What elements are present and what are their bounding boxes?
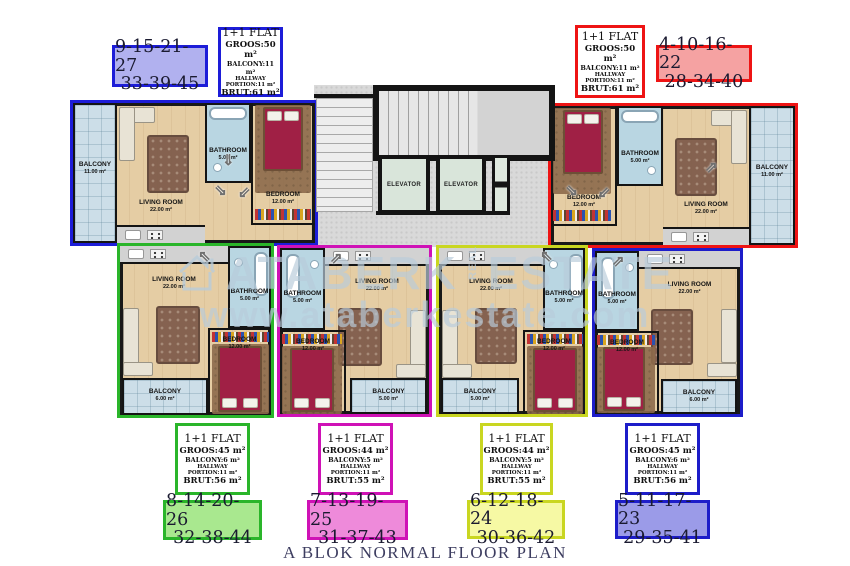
sink-icon (125, 230, 141, 240)
bed (263, 107, 303, 171)
room-name: BEDROOM (266, 191, 300, 198)
watermark-estate: ESTATE (488, 246, 675, 300)
flat-hallway: HALLWAY PORTION:11 m² (321, 464, 390, 476)
room-area: 12.00 m² (208, 344, 271, 351)
flat-balcony: BALCONY:5 m² (489, 456, 544, 464)
flat-type: 1+1 FLAT (222, 26, 278, 39)
sink-icon (671, 232, 687, 242)
room-area: 12.00 m² (523, 346, 585, 353)
unit-numbers-line1: 8-14-20-26 (166, 492, 259, 529)
room-area: 5.00 m² (350, 396, 427, 403)
unit-numbers-bottom-1: 8-14-20-26 32-38-44 (163, 500, 262, 540)
door-swing-arrow: ⇗ (539, 250, 554, 263)
unit-numbers-bottom-3: 6-12-18-24 30-36-42 (467, 500, 565, 539)
door-swing-arrow: ⇗ (598, 185, 611, 200)
flat-groos: GROOS:50 m² (221, 40, 280, 60)
balcony-label: BALCONY 6.00 m² (661, 389, 737, 405)
flat-brut: BRUT:61 m² (221, 88, 279, 98)
unit-numbers-bottom-4: 5-11-17-23 29-35-41 (615, 500, 710, 539)
flat-hallway: HALLWAY PORTION:11 m² (221, 76, 280, 88)
washbasin (647, 166, 656, 175)
unit-numbers-line1: 5-11-17-23 (618, 492, 707, 529)
unit-numbers-top-left: 9-15-21-27 33-39-45 (112, 45, 208, 87)
staircase-block (373, 85, 555, 161)
bed (563, 110, 603, 174)
apartment-top-right: BEDROOM 12.00 m² BATHROOM 5.00 m² LIVING… (548, 103, 798, 248)
unit-numbers-top-right: 4-10-16-22 28-34-40 (656, 45, 752, 82)
staircase-west (316, 98, 373, 212)
stove-icon (147, 230, 163, 240)
room-area: 22.00 m² (663, 209, 749, 216)
room-name: BALCONY (683, 389, 715, 396)
flat-info-bottom-2: 1+1 FLAT GROOS:44 m² BALCONY:5 m² HALLWA… (318, 423, 393, 495)
bathroom-label: BATHROOM 5.00 m² (617, 150, 663, 166)
flat-groos: GROOS:45 m² (630, 446, 696, 456)
room-area: 5.00 m² (441, 396, 519, 403)
flat-brut: BRUT:61 m² (581, 84, 639, 94)
living-room-label: LIVING ROOM 22.00 m² (663, 201, 749, 217)
balcony-label: BALCONY 11.00 m² (749, 164, 795, 180)
door-swing-arrow: ⇗ (705, 160, 718, 175)
balcony-label: BALCONY 5.00 m² (441, 388, 519, 404)
room-name: BEDROOM (223, 336, 257, 343)
kitchen-counter (663, 227, 749, 245)
bed (218, 346, 262, 412)
washbasin (213, 163, 222, 172)
flat-groos: GROOS:44 m² (484, 446, 550, 456)
stair-steps (379, 91, 478, 155)
bedroom-label: BEDROOM 12.00 m² (595, 339, 659, 355)
unit-numbers-bottom-2: 7-13-19-25 31-37-43 (307, 500, 408, 540)
sofa (119, 107, 135, 161)
door-swing-arrow: ⇗ (330, 251, 343, 266)
elevator-right-label: ELEVATOR (444, 182, 478, 188)
room-area: 22.00 m² (117, 207, 205, 214)
room-area: 5.00 m² (617, 158, 663, 165)
bathroom (205, 103, 251, 183)
room-name: BEDROOM (610, 339, 644, 346)
room-area: 12.00 m² (551, 202, 617, 209)
dresser (553, 210, 611, 221)
unit-numbers-line1: 7-13-19-25 (310, 492, 405, 529)
unit-numbers-line2: 28-34-40 (665, 73, 744, 91)
flat-brut: BRUT:55 m² (326, 476, 384, 486)
door-swing-arrow: ⇗ (564, 184, 579, 197)
balcony-label: BALCONY 6.00 m² (122, 388, 208, 404)
corridor-wall (376, 211, 510, 215)
bedroom-label: BEDROOM 12.00 m² (208, 336, 271, 352)
bed (290, 348, 334, 412)
flat-brut: BRUT:55 m² (487, 476, 545, 486)
flat-hallway: HALLWAY PORTION:11 m² (178, 464, 247, 476)
watermark-url: www.ataberkestate.com (0, 294, 850, 336)
bedroom-label: BEDROOM 12.00 m² (251, 191, 315, 207)
flat-hallway: HALLWAY PORTION:11 m² (483, 464, 550, 476)
flat-hallway: HALLWAY PORTION:11 m² (628, 464, 697, 476)
service-shaft (492, 155, 510, 214)
bedroom-label: BEDROOM 12.00 m² (523, 338, 585, 354)
elevator-left-label: ELEVATOR (387, 182, 421, 188)
unit-numbers-line2: 33-39-45 (121, 75, 200, 93)
flat-balcony: BALCONY:11 m² (580, 64, 639, 72)
door-swing-arrow: ⇗ (238, 185, 251, 200)
flat-type: 1+1 FLAT (634, 432, 690, 445)
flat-type: 1+1 FLAT (488, 432, 544, 445)
flat-balcony: BALCONY:5 m² (328, 456, 383, 464)
flat-brut: BRUT:56 m² (633, 476, 691, 486)
flat-groos: GROOS:50 m² (578, 44, 642, 64)
bathroom (617, 106, 663, 186)
kitchen-counter (117, 225, 205, 243)
unit-numbers-line1: 9-15-21-27 (115, 38, 205, 75)
room-name: BEDROOM (537, 338, 571, 345)
flat-balcony: BALCONY:11 m² (221, 60, 280, 76)
sofa (731, 110, 747, 164)
bedroom (251, 103, 315, 225)
flat-balcony: BALCONY:6 m² (635, 456, 690, 464)
floor-plan-page: ELEVATOR ELEVATOR BALCONY 11.00 m² LIVIN… (0, 0, 850, 566)
flat-info-top-left: 1+1 FLAT GROOS:50 m² BALCONY:11 m² HALLW… (218, 27, 283, 97)
room-name: BALCONY (79, 161, 111, 168)
room-name: BEDROOM (296, 338, 330, 345)
room-area: 11.00 m² (749, 172, 795, 179)
unit-numbers-line1: 4-10-16-22 (659, 36, 749, 73)
stove-icon (693, 232, 709, 242)
rug (147, 135, 189, 193)
door-swing-arrow: ⇗ (612, 254, 625, 269)
bathtub (209, 107, 247, 120)
sofa (442, 364, 472, 378)
bedroom-label: BEDROOM 12.00 m² (280, 338, 346, 354)
living-room-label: LIVING ROOM 22.00 m² (117, 199, 205, 215)
flat-type: 1+1 FLAT (582, 30, 638, 43)
elevator-right: ELEVATOR (436, 155, 486, 214)
room-name: LIVING ROOM (684, 201, 728, 208)
room-area: 12.00 m² (595, 347, 659, 354)
room-area: 12.00 m² (251, 199, 315, 206)
room-name: LIVING ROOM (139, 199, 183, 206)
flat-type: 1+1 FLAT (184, 432, 240, 445)
flat-balcony: BALCONY:6 m² (185, 456, 240, 464)
flat-hallway: HALLWAY PORTION:11 m² (578, 72, 642, 84)
watermark-real-vertical: REAL (467, 266, 479, 280)
bed (603, 347, 645, 411)
door-swing-arrow: ⇗ (197, 250, 212, 263)
room-name: BATHROOM (621, 150, 659, 157)
elevator-left: ELEVATOR (378, 155, 430, 214)
door-swing-arrow: ⇗ (213, 184, 228, 197)
flat-groos: GROOS:44 m² (323, 446, 389, 456)
flat-info-bottom-1: 1+1 FLAT GROOS:45 m² BALCONY:6 m² HALLWA… (175, 423, 250, 495)
flat-info-top-right: 1+1 FLAT GROOS:50 m² BALCONY:11 m² HALLW… (575, 25, 645, 98)
flat-type: 1+1 FLAT (327, 432, 383, 445)
room-area: 11.00 m² (73, 169, 117, 176)
dresser (255, 209, 311, 220)
sofa (707, 363, 737, 377)
plan-title: A BLOK NORMAL FLOOR PLAN (0, 543, 850, 563)
flat-groos: GROOS:45 m² (180, 446, 246, 456)
apartment-top-left: BALCONY 11.00 m² LIVING ROOM 22.00 m² BA… (70, 100, 318, 246)
room-name: BALCONY (756, 164, 788, 171)
flat-brut: BRUT:56 m² (183, 476, 241, 486)
unit-numbers-line1: 6-12-18-24 (470, 492, 562, 529)
flat-info-bottom-4: 1+1 FLAT GROOS:45 m² BALCONY:6 m² HALLWA… (625, 423, 700, 495)
room-name: BALCONY (372, 388, 404, 395)
watermark: ATABERK REAL ESTATE (0, 246, 850, 300)
room-name: BALCONY (464, 388, 496, 395)
balcony-label: BALCONY 5.00 m² (350, 388, 427, 404)
corridor-wall-top (314, 94, 375, 98)
sofa (123, 362, 153, 376)
flat-info-bottom-3: 1+1 FLAT GROOS:44 m² BALCONY:5 m² HALLWA… (480, 423, 553, 495)
sofa (396, 364, 426, 378)
room-area: 6.00 m² (122, 396, 208, 403)
room-area: 12.00 m² (280, 346, 346, 353)
room-name: BALCONY (149, 388, 181, 395)
bed (533, 348, 577, 412)
bathtub (621, 110, 659, 123)
room-area: 6.00 m² (661, 397, 737, 404)
balcony-label: BALCONY 11.00 m² (73, 161, 117, 177)
